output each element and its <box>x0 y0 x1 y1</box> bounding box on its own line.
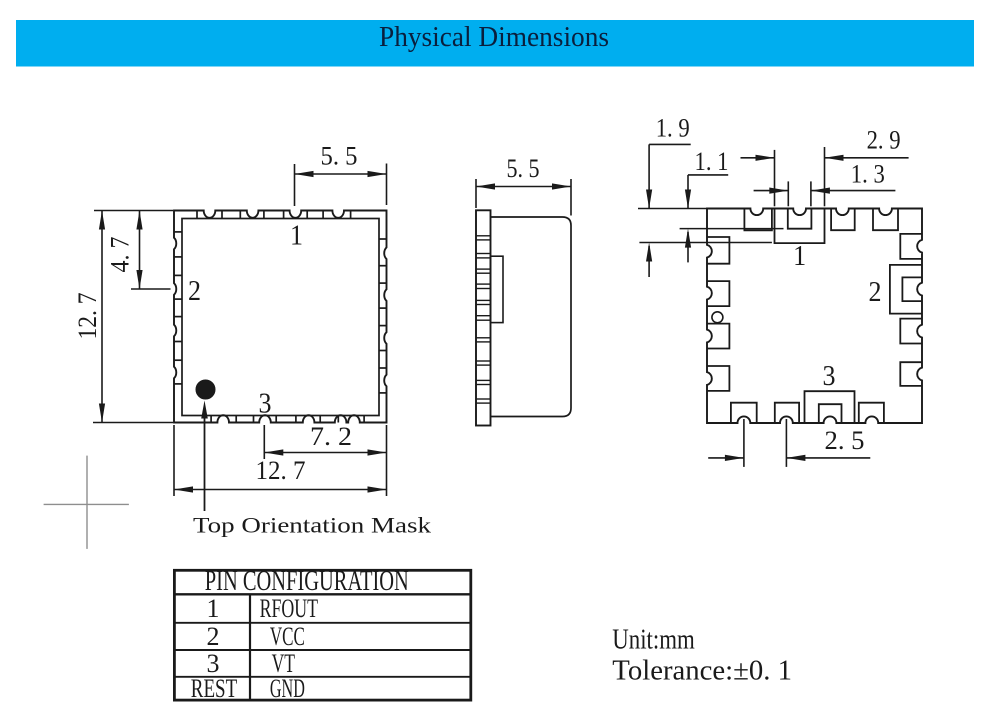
svg-text:VCC: VCC <box>270 622 305 651</box>
svg-text:3: 3 <box>823 361 836 392</box>
svg-text:2. 5: 2. 5 <box>825 426 865 455</box>
svg-text:5. 5: 5. 5 <box>321 142 358 171</box>
svg-text:2: 2 <box>188 276 201 307</box>
svg-text:7. 2: 7. 2 <box>310 422 352 451</box>
svg-text:1: 1 <box>207 594 220 623</box>
svg-text:5. 5: 5. 5 <box>507 154 540 183</box>
svg-text:Tolerance:±0. 1: Tolerance:±0. 1 <box>612 655 792 686</box>
svg-text:Physical Dimensions: Physical Dimensions <box>379 22 609 53</box>
svg-text:2: 2 <box>869 277 882 308</box>
svg-text:Unit:mm: Unit:mm <box>612 625 695 656</box>
svg-text:2. 9: 2. 9 <box>867 126 901 155</box>
svg-text:1: 1 <box>290 221 303 252</box>
svg-text:GND: GND <box>270 674 305 703</box>
svg-text:1. 3: 1. 3 <box>851 160 885 189</box>
svg-text:3: 3 <box>259 389 272 420</box>
svg-text:RFOUT: RFOUT <box>260 594 318 623</box>
svg-text:12. 7: 12. 7 <box>256 456 306 485</box>
svg-text:2: 2 <box>207 622 220 651</box>
svg-text:REST: REST <box>191 674 237 703</box>
svg-text:4. 7: 4. 7 <box>106 237 135 273</box>
svg-text:PIN CONFIGURATION: PIN CONFIGURATION <box>205 566 409 597</box>
svg-text:1: 1 <box>793 241 806 272</box>
svg-text:Top Orientation Mask: Top Orientation Mask <box>193 513 431 538</box>
svg-text:1. 9: 1. 9 <box>656 114 690 143</box>
svg-text:1. 1: 1. 1 <box>695 147 729 176</box>
svg-text:12. 7: 12. 7 <box>73 293 102 340</box>
